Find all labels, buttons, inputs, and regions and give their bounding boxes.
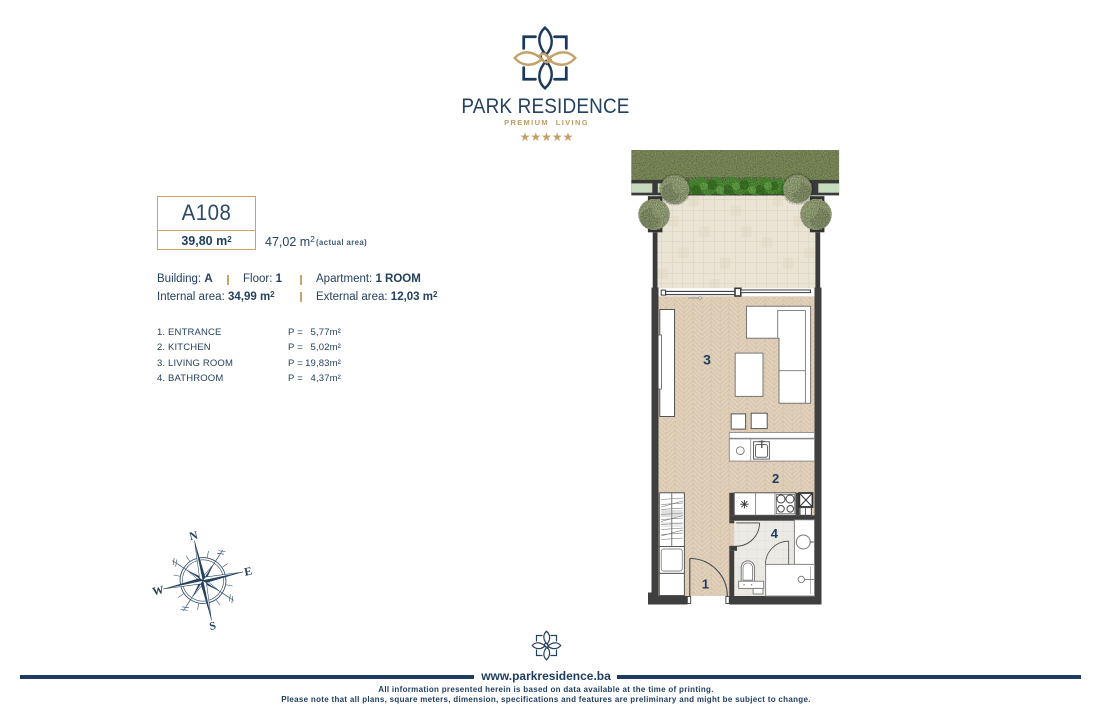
svg-text:S: S xyxy=(208,620,217,633)
svg-text:3: 3 xyxy=(703,352,711,368)
svg-text:W: W xyxy=(151,584,165,598)
svg-text:N: N xyxy=(188,530,199,544)
svg-text:E: E xyxy=(243,565,253,578)
svg-text:1: 1 xyxy=(702,577,709,592)
svg-text:2: 2 xyxy=(772,471,779,486)
svg-text:4: 4 xyxy=(771,526,779,541)
